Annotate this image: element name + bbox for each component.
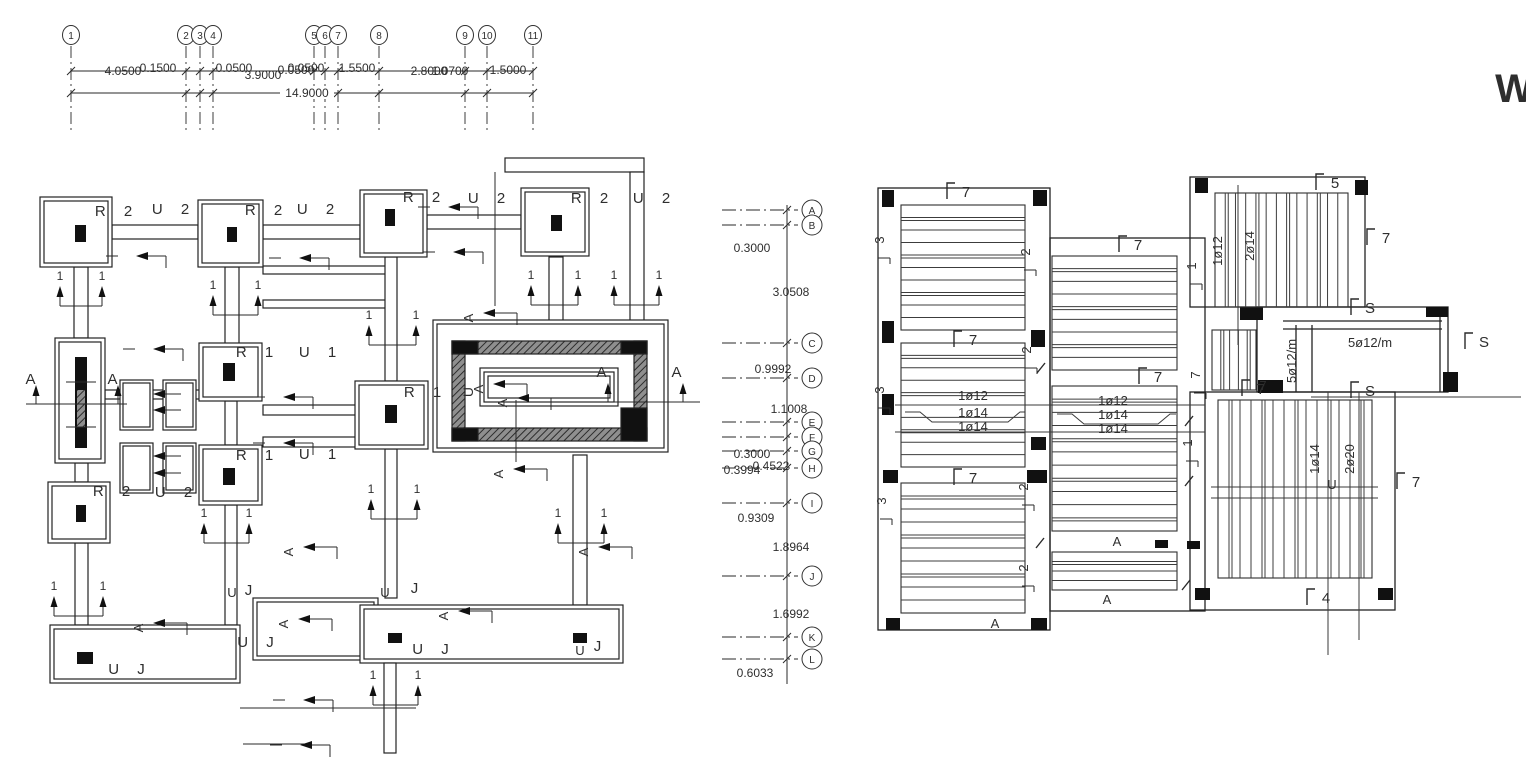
rebar-callout: A xyxy=(1113,534,1122,549)
grid-bubble-label: K xyxy=(809,633,816,644)
section-mark-label: 1 xyxy=(100,579,107,593)
section-mark-label: 1 xyxy=(246,506,253,520)
rebar-callout: A xyxy=(991,616,1000,631)
rebar-callout: 2 xyxy=(1016,483,1031,490)
section-mark-label: 1 xyxy=(414,482,421,496)
grid-bubble-label: C xyxy=(808,339,815,350)
rebar-callout: U xyxy=(1327,477,1336,492)
plan-label: J xyxy=(411,580,426,597)
section-mark-label: 1 xyxy=(51,579,58,593)
section-mark-label: 1 xyxy=(601,506,608,520)
plan-label: U 2 xyxy=(633,190,677,207)
plan-label: R 2 xyxy=(403,189,447,206)
grid-bubble-label: 11 xyxy=(528,31,539,42)
bracket-mark xyxy=(1307,589,1315,605)
rebar-callout: 2ø14 xyxy=(1242,231,1257,261)
dimension-label: 1.5500 xyxy=(339,61,376,75)
bracket-label: 7 xyxy=(1154,369,1162,386)
bracket-mark xyxy=(1351,382,1359,398)
core-corner-column xyxy=(452,341,478,354)
core-corner-column xyxy=(621,408,647,441)
bracket-label: 7 xyxy=(1382,230,1390,247)
bracket-label: 7 xyxy=(969,470,977,487)
rebar-callout: 1 xyxy=(1180,439,1195,446)
dimension-label: 1.5000 xyxy=(490,63,527,77)
section-cut-label: A xyxy=(276,619,291,628)
rebar-panel xyxy=(1052,256,1177,370)
grid-bubble-label: 8 xyxy=(376,31,382,42)
rebar-callout: 1ø12 xyxy=(1098,393,1128,408)
bracket-label: 4 xyxy=(1322,590,1330,607)
grid-bubble-label: B xyxy=(809,221,816,232)
grid-bubble-label: G xyxy=(808,447,816,458)
plan-label: J xyxy=(245,582,260,599)
rebar-callout: 1ø14 xyxy=(958,419,988,434)
rebar-panel xyxy=(1212,330,1256,390)
bracket-label: 7 xyxy=(969,332,977,349)
bracket-mark xyxy=(1367,229,1375,245)
section-mark-label: 1 xyxy=(99,269,106,283)
rebar-callout: A xyxy=(1103,592,1112,607)
plan-label: R 1 xyxy=(404,384,448,401)
plan-label: R 2 xyxy=(571,190,615,207)
core-corner-column xyxy=(452,428,478,441)
plan-label: A xyxy=(671,364,688,381)
plan-label: U 1 xyxy=(299,446,343,463)
section-mark-label: 1 xyxy=(368,482,375,496)
section-cut-label: A xyxy=(131,623,146,632)
rebar-callout: 1ø14 xyxy=(1307,444,1322,474)
grid-bubble-label: 4 xyxy=(210,31,216,42)
plan-label: A xyxy=(596,364,613,381)
dimension-label: 1.1008 xyxy=(771,402,808,416)
grid-bubble-label: J xyxy=(810,572,815,583)
cad-drawing-canvas: W 12345678910114.05000.15000.05003.90000… xyxy=(0,0,1526,766)
grid-bubble-label: I xyxy=(811,499,814,510)
section-cut-label: A xyxy=(461,313,476,322)
section-cut-label: A xyxy=(436,611,451,620)
stirrup-mark: U xyxy=(227,585,236,600)
section-mark-label: 1 xyxy=(575,268,582,282)
dimension-label: 1.6992 xyxy=(773,607,810,621)
section-mark-label: 1 xyxy=(210,278,217,292)
plan-label: J xyxy=(594,638,609,655)
rebar-callout: 2 xyxy=(1016,564,1031,571)
section-mark-label: 1 xyxy=(366,308,373,322)
plan-label: A xyxy=(107,371,124,388)
grid-bubble-label: 1 xyxy=(68,31,74,42)
plan-label: R 2 xyxy=(95,203,139,220)
dimension-label: 3.0508 xyxy=(773,285,810,299)
grid-bubble-label: 2 xyxy=(183,31,189,42)
grid-bubble-label: 6 xyxy=(322,31,328,42)
grid-bubble-label: D xyxy=(808,374,815,385)
bracket-label: 7 xyxy=(962,184,970,201)
plan-label: U 2 xyxy=(155,484,199,501)
rebar-callout: 3 xyxy=(874,497,889,504)
grid-bubble-label: L xyxy=(809,655,815,666)
section-mark-label: 1 xyxy=(201,506,208,520)
dimension-label: 0.9309 xyxy=(738,511,775,525)
section-mark-label: 1 xyxy=(528,268,535,282)
dimension-label: 0.1500 xyxy=(140,61,177,75)
watermark: W xyxy=(1495,67,1526,111)
section-mark-label: 1 xyxy=(656,268,663,282)
plan-label: R 1 xyxy=(236,447,280,464)
section-mark-label: 1 xyxy=(611,268,618,282)
section-mark-label: 1 xyxy=(57,269,64,283)
rebar-callout: 1ø12 xyxy=(958,388,988,403)
bracket-mark xyxy=(954,331,962,347)
rebar-callout: 1ø14 xyxy=(1098,407,1128,422)
rebar-callout: 2 xyxy=(1018,248,1033,255)
bracket-label: S xyxy=(1365,383,1375,400)
dimension-label: 3.9000 xyxy=(245,68,282,82)
core-footing xyxy=(433,320,668,452)
dimension-label: 0.9992 xyxy=(755,362,792,376)
section-cut-label: A xyxy=(576,547,591,556)
dimension-label: 0.6033 xyxy=(737,666,774,680)
slab-outline xyxy=(878,177,1448,630)
rebar-callout: 5ø12/m xyxy=(1348,335,1392,350)
rebar-callout: 3 xyxy=(872,386,887,393)
core-corner-column xyxy=(621,341,647,354)
section-mark-label: 1 xyxy=(255,278,262,292)
plan-label: U 2 xyxy=(297,201,341,218)
rebar-callout: 5ø12/m xyxy=(1284,339,1299,383)
rebar-callout: 1ø12 xyxy=(1210,236,1225,266)
plan-label: U 2 xyxy=(152,201,196,218)
dimension-total-label: 14.9000 xyxy=(285,86,329,100)
grid-bubble-label: H xyxy=(808,464,815,475)
dimension-label: 1.0700 xyxy=(432,64,469,78)
grid-bubble-label: 7 xyxy=(335,31,341,42)
bracket-label: S xyxy=(1365,300,1375,317)
rebar-callout: 3 xyxy=(872,236,887,243)
section-mark-label: 1 xyxy=(415,668,422,682)
dimension-label: 0.3994 xyxy=(724,463,761,477)
grid-bubble-label: 3 xyxy=(197,31,203,42)
rebar-callout: 1 xyxy=(1184,262,1199,269)
rebar-callout: 1ø14 xyxy=(958,405,988,420)
bracket-mark xyxy=(1397,473,1405,489)
section-cut-label: A xyxy=(281,547,296,556)
bracket-mark xyxy=(1465,333,1473,349)
bracket-mark xyxy=(947,183,955,199)
section-cut-label: A xyxy=(471,384,486,393)
plan-label: R 2 xyxy=(93,483,137,500)
dimension-label: 1.8964 xyxy=(773,540,810,554)
bracket-mark xyxy=(1242,380,1250,396)
rebar-callout: 1ø14 xyxy=(1098,421,1128,436)
dimension-label: 0.0500 xyxy=(288,61,325,75)
plan-label: U J xyxy=(237,634,281,651)
stirrup-mark: U xyxy=(380,585,389,600)
plan-label: U J xyxy=(412,641,456,658)
bracket-label: 5 xyxy=(1331,175,1339,192)
section-mark-label: 1 xyxy=(413,308,420,322)
section-mark-label: 1 xyxy=(370,668,377,682)
rebar-callout: 7 xyxy=(1188,371,1203,378)
plan-label: U J xyxy=(108,661,152,678)
section-mark-label: 1 xyxy=(555,506,562,520)
plan-label: U 2 xyxy=(468,190,512,207)
cad-sheet: W 12345678910114.05000.15000.05003.90000… xyxy=(0,0,1526,766)
bracket-label: 7 xyxy=(1257,381,1265,398)
dimension-label: 0.3000 xyxy=(734,241,771,255)
section-cut-label: A xyxy=(491,469,506,478)
rebar-callout: 2 xyxy=(1019,346,1034,353)
plan-label: U 1 xyxy=(299,344,343,361)
bracket-label: S xyxy=(1479,334,1489,351)
grid-bubble-label: 10 xyxy=(481,31,493,42)
rebar-callout: 2ø20 xyxy=(1342,444,1357,474)
dimension-label: 4.0500 xyxy=(105,64,142,78)
bracket-label: 7 xyxy=(1134,237,1142,254)
section-cut-label: A xyxy=(495,398,510,407)
plan-label: A xyxy=(25,371,42,388)
plan-label: R 2 xyxy=(245,202,289,219)
wall-hatch xyxy=(77,390,85,427)
bracket-label: 7 xyxy=(1412,474,1420,491)
grid-bubble-label: 9 xyxy=(462,31,468,42)
stirrup-mark: U xyxy=(575,643,584,658)
rebar-panel xyxy=(1215,193,1348,307)
plan-label: R 1 xyxy=(236,344,280,361)
